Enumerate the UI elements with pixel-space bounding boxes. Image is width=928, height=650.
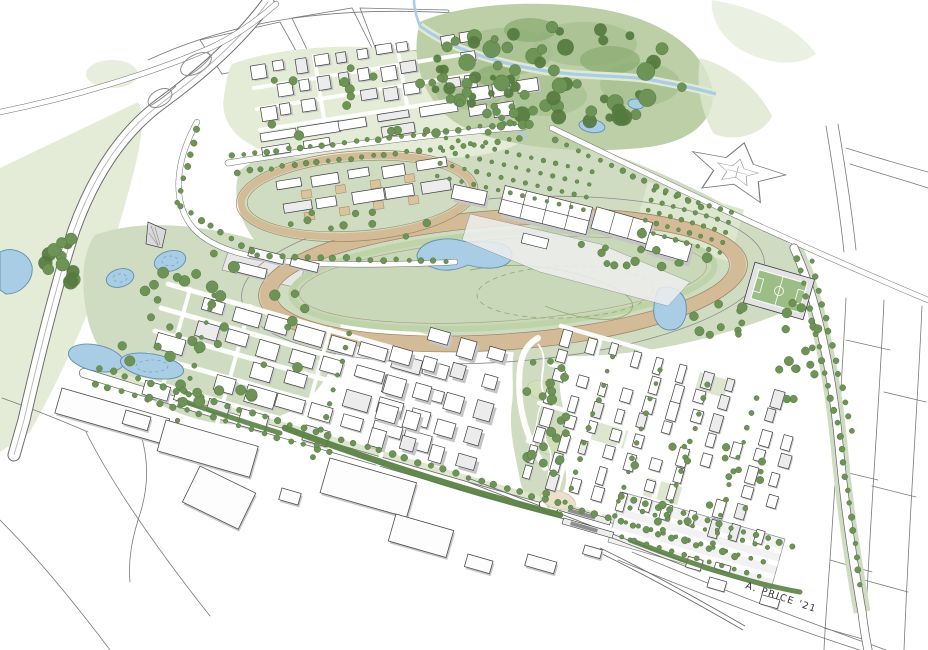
- park-tree: [261, 362, 267, 368]
- street-tree: [323, 414, 329, 420]
- street-tree: [438, 145, 443, 150]
- street-tree: [706, 546, 712, 552]
- park-tree: [737, 302, 747, 312]
- street-tree: [655, 531, 661, 537]
- street-tree: [92, 381, 98, 387]
- street-tree: [630, 497, 637, 504]
- park-tree: [309, 210, 315, 216]
- street-tree: [329, 255, 336, 262]
- street-tree: [389, 450, 396, 457]
- park-tree: [504, 88, 514, 98]
- park-tree: [558, 364, 565, 371]
- street-tree: [297, 145, 303, 151]
- park-tree: [539, 443, 547, 451]
- street-tree: [819, 301, 825, 307]
- street-tree: [504, 485, 510, 491]
- street-tree: [843, 400, 848, 405]
- street-tree: [612, 513, 617, 518]
- street-tree: [660, 527, 665, 532]
- street-tree: [376, 447, 382, 453]
- park-tree: [586, 106, 597, 117]
- park-tree: [228, 261, 240, 273]
- building: [360, 88, 378, 101]
- street-tree: [855, 567, 861, 573]
- street-tree: [289, 439, 294, 444]
- park-tree: [149, 280, 158, 289]
- street-tree: [472, 143, 477, 148]
- park-tree: [594, 23, 607, 36]
- street-tree: [822, 371, 827, 376]
- park-tree: [631, 257, 640, 266]
- park-tree: [246, 389, 258, 401]
- park-tree: [631, 109, 641, 119]
- building: [279, 103, 291, 116]
- street-tree: [719, 548, 726, 555]
- street-tree: [626, 470, 630, 474]
- building: [295, 58, 308, 74]
- park-tree: [352, 210, 359, 217]
- park-tree: [530, 359, 536, 365]
- park-tree: [499, 115, 505, 121]
- building: [250, 64, 267, 80]
- street-tree: [643, 411, 648, 416]
- park-tree: [210, 250, 217, 257]
- park-tree: [369, 209, 376, 216]
- street-tree: [96, 365, 102, 371]
- street-tree: [653, 184, 659, 190]
- park-tree: [546, 427, 556, 437]
- park-tree: [433, 55, 441, 63]
- street-tree: [507, 137, 511, 141]
- street-tree: [314, 442, 319, 447]
- park-tree: [547, 395, 557, 405]
- park-tree: [507, 28, 520, 41]
- street-tree: [414, 459, 421, 466]
- park-tree: [578, 241, 585, 248]
- street-tree: [262, 431, 267, 436]
- park-tree: [269, 290, 280, 301]
- street-tree: [335, 373, 339, 377]
- park-tree: [415, 79, 424, 88]
- street-tree: [210, 414, 216, 420]
- street-tree: [668, 535, 674, 541]
- street-tree: [605, 369, 609, 373]
- street-tree: [208, 223, 214, 229]
- park-tree: [468, 36, 480, 48]
- building: [317, 75, 331, 90]
- park-tree: [497, 122, 505, 130]
- street-tree: [236, 423, 240, 427]
- park-tree: [797, 303, 806, 312]
- park-tree: [507, 120, 514, 127]
- street-tree: [175, 418, 180, 423]
- park-tree: [739, 320, 745, 326]
- street-tree: [679, 469, 684, 474]
- street-tree: [598, 158, 602, 162]
- street-tree: [839, 446, 845, 452]
- street-tree: [204, 320, 208, 324]
- street-tree: [749, 410, 754, 415]
- street-tree: [122, 374, 128, 380]
- street-tree: [110, 368, 117, 375]
- street-tree: [365, 137, 370, 142]
- street-tree: [823, 315, 829, 321]
- park-tree: [525, 120, 534, 129]
- street-tree: [609, 163, 614, 168]
- park-tree: [456, 99, 463, 106]
- street-tree: [371, 153, 375, 157]
- park-tree: [675, 260, 681, 266]
- street-tree: [528, 493, 534, 499]
- park-tree: [482, 109, 491, 118]
- street-tree: [178, 203, 184, 209]
- street-tree: [605, 515, 611, 521]
- street-tree: [658, 368, 663, 373]
- street-tree: [552, 137, 558, 143]
- street-tree: [622, 485, 627, 490]
- street-tree: [810, 259, 815, 264]
- park-tree: [539, 392, 547, 400]
- stable-paddock: [339, 206, 350, 215]
- park-tree: [446, 95, 455, 104]
- street-tree: [310, 454, 315, 459]
- street-tree: [301, 425, 307, 431]
- street-tree: [648, 397, 653, 402]
- street-tree: [569, 486, 574, 491]
- street-tree: [238, 243, 244, 249]
- masterplan-drawing: A. PRICE '21: [0, 0, 928, 650]
- park-tree: [483, 40, 500, 57]
- street-tree: [840, 459, 846, 465]
- street-tree: [157, 400, 164, 407]
- street-tree: [393, 151, 398, 156]
- park-tree: [706, 502, 713, 509]
- street-tree: [568, 505, 573, 510]
- street-tree: [798, 268, 803, 273]
- street-tree: [305, 255, 311, 261]
- street-tree: [577, 456, 582, 461]
- park-tree: [220, 323, 229, 332]
- park-tree: [442, 42, 452, 52]
- park-tree: [369, 220, 376, 227]
- park-tree: [669, 443, 677, 451]
- street-tree: [642, 501, 648, 507]
- park-tree: [684, 458, 690, 464]
- street-tree: [104, 385, 110, 391]
- street-tree: [835, 420, 840, 425]
- street-tree: [664, 512, 670, 518]
- street-tree: [742, 440, 746, 444]
- street-tree: [418, 258, 424, 264]
- park-tree: [775, 366, 782, 373]
- building: [299, 79, 310, 91]
- park-tree: [809, 345, 815, 351]
- street-tree: [160, 384, 167, 391]
- park-tree: [637, 229, 647, 239]
- street-tree: [273, 148, 279, 154]
- park-tree: [493, 108, 501, 116]
- street-tree: [630, 523, 636, 529]
- street-tree: [229, 236, 234, 241]
- street-tree: [274, 435, 280, 441]
- street-tree: [466, 476, 471, 481]
- street-tree: [404, 149, 408, 153]
- street-tree: [319, 143, 325, 149]
- street-tree: [440, 466, 447, 473]
- park-tree: [214, 340, 222, 348]
- park-tree: [431, 128, 440, 137]
- street-tree: [381, 152, 386, 157]
- park-tree: [562, 413, 570, 421]
- street-tree: [847, 500, 852, 505]
- park-tree: [423, 219, 431, 227]
- stable-paddock: [404, 173, 415, 182]
- street-tree: [618, 493, 624, 499]
- park-tree: [342, 101, 350, 109]
- park-tree: [403, 233, 409, 239]
- street-tree: [354, 139, 359, 144]
- park-tree: [756, 476, 763, 483]
- park-tree: [294, 131, 304, 141]
- street-tree: [840, 385, 846, 391]
- park-tree: [485, 129, 491, 135]
- park-tree: [56, 258, 69, 271]
- street-tree: [701, 395, 706, 400]
- park-tree: [180, 387, 186, 393]
- park-tree: [347, 92, 355, 100]
- park-tree: [304, 217, 311, 224]
- street-tree: [350, 440, 356, 446]
- park-tree: [347, 65, 354, 72]
- park-tree: [743, 506, 748, 511]
- park-tree: [451, 37, 460, 46]
- street-tree: [610, 354, 615, 359]
- street-tree: [356, 257, 361, 262]
- park-tree: [623, 262, 630, 269]
- street-tree: [579, 508, 585, 514]
- park-tree: [548, 387, 556, 395]
- street-tree: [790, 544, 795, 549]
- park-tree: [598, 249, 606, 257]
- park-tree: [509, 108, 519, 118]
- street-tree: [326, 159, 330, 163]
- stable-paddock: [370, 179, 381, 188]
- street-tree: [729, 526, 734, 531]
- street-tree: [766, 535, 771, 540]
- street-tree: [838, 433, 844, 439]
- park-tree: [539, 459, 547, 467]
- park-tree: [551, 109, 566, 124]
- street-tree: [229, 152, 235, 158]
- street-tree: [450, 145, 455, 150]
- park-tree: [637, 246, 644, 253]
- park-tree: [548, 65, 559, 76]
- street-tree: [687, 439, 692, 444]
- street-tree: [189, 210, 194, 215]
- park-tree: [165, 351, 176, 362]
- street-tree: [187, 152, 193, 158]
- park-tree: [547, 358, 553, 364]
- park-tree: [814, 325, 822, 333]
- street-tree: [586, 425, 591, 430]
- park-tree: [758, 469, 763, 474]
- park-tree: [488, 90, 495, 97]
- park-tree: [735, 331, 741, 337]
- street-tree: [643, 526, 650, 533]
- street-tree: [573, 470, 578, 475]
- park-tree: [637, 63, 655, 81]
- park-tree: [193, 388, 202, 397]
- street-tree: [331, 388, 336, 393]
- park-tree: [560, 373, 568, 381]
- street-tree: [193, 126, 199, 132]
- street-tree: [845, 488, 850, 493]
- park-tree: [268, 120, 276, 128]
- park-tree: [706, 331, 714, 339]
- street-tree: [330, 142, 335, 147]
- street-tree: [428, 463, 433, 468]
- park-tree: [43, 264, 54, 275]
- street-tree: [234, 170, 240, 176]
- park-tree: [291, 290, 299, 298]
- street-tree: [857, 582, 862, 587]
- park-tree: [695, 327, 704, 336]
- park-tree: [502, 42, 513, 53]
- street-tree: [380, 257, 386, 263]
- street-tree: [386, 135, 391, 140]
- street-tree: [401, 454, 408, 461]
- street-tree: [776, 539, 783, 546]
- street-tree: [663, 188, 668, 193]
- street-tree: [399, 134, 403, 138]
- street-tree: [723, 497, 728, 502]
- street-tree: [444, 259, 449, 264]
- street-tree: [854, 555, 859, 560]
- street-tree: [590, 411, 594, 415]
- park-tree: [782, 325, 790, 333]
- street-tree: [247, 167, 253, 173]
- street-tree: [848, 514, 855, 521]
- park-tree: [550, 470, 557, 477]
- park-tree: [546, 379, 555, 388]
- park-tree: [543, 490, 550, 497]
- canopy-dark: [580, 46, 640, 74]
- street-tree: [274, 417, 281, 424]
- street-tree: [835, 371, 841, 377]
- park-tree: [791, 365, 799, 373]
- park-tree: [811, 370, 819, 378]
- street-tree: [478, 124, 482, 128]
- street-tree: [249, 427, 254, 432]
- building: [381, 65, 398, 81]
- street-tree: [495, 139, 501, 145]
- stable-paddock: [335, 184, 346, 193]
- park-tree: [154, 343, 161, 350]
- street-tree: [825, 383, 830, 388]
- street-tree: [853, 541, 858, 546]
- park-tree: [147, 314, 154, 321]
- street-tree: [816, 288, 822, 294]
- park-tree: [423, 127, 430, 134]
- street-tree: [698, 204, 704, 210]
- park-tree: [789, 299, 797, 307]
- park-tree: [722, 455, 728, 461]
- street-tree: [586, 154, 590, 158]
- street-tree: [192, 363, 197, 368]
- street-tree: [461, 143, 466, 148]
- park-tree: [717, 323, 724, 330]
- street-tree: [342, 140, 347, 145]
- park-tree: [782, 308, 792, 318]
- street-tree: [211, 398, 218, 405]
- park-tree: [534, 57, 546, 69]
- park-tree: [300, 304, 309, 313]
- street-tree: [812, 274, 818, 280]
- park-tree: [432, 85, 440, 93]
- park-tree: [537, 44, 547, 54]
- park-tree: [736, 467, 742, 473]
- street-tree: [479, 478, 485, 484]
- street-tree: [181, 176, 186, 181]
- street-tree: [483, 140, 488, 145]
- street-tree: [199, 335, 203, 339]
- street-tree: [596, 397, 601, 402]
- park-tree: [557, 39, 574, 56]
- street-tree: [337, 157, 342, 162]
- street-tree: [581, 440, 586, 445]
- park-tree: [166, 324, 173, 331]
- street-tree: [347, 331, 352, 336]
- park-tree: [612, 104, 626, 118]
- street-tree: [634, 440, 639, 445]
- street-tree: [255, 253, 260, 258]
- street-tree: [618, 518, 624, 524]
- street-tree: [705, 382, 711, 388]
- street-tree: [601, 383, 606, 388]
- park-tree: [573, 79, 582, 88]
- street-tree: [731, 553, 738, 560]
- street-tree: [338, 437, 344, 443]
- street-tree: [185, 407, 190, 412]
- park-tree: [682, 444, 687, 449]
- street-tree: [744, 425, 749, 430]
- street-tree: [641, 178, 647, 184]
- street-tree: [696, 412, 701, 417]
- street-tree: [318, 427, 324, 433]
- park-tree: [236, 385, 246, 395]
- street-tree: [794, 256, 800, 262]
- street-tree: [191, 140, 197, 146]
- street-tree: [375, 137, 381, 143]
- park-tree: [206, 281, 218, 293]
- street-tree: [263, 414, 268, 419]
- street-tree: [348, 157, 353, 162]
- street-tree: [803, 293, 809, 299]
- building: [314, 53, 330, 66]
- street-tree: [147, 380, 154, 387]
- street-tree: [693, 426, 698, 431]
- street-tree: [343, 345, 348, 350]
- park-tree: [702, 253, 712, 263]
- street-tree: [252, 150, 257, 155]
- park-tree: [328, 226, 333, 231]
- park-tree: [652, 246, 660, 254]
- street-tree: [292, 162, 298, 168]
- street-tree: [368, 258, 373, 263]
- street-tree: [807, 306, 813, 312]
- park-tree: [546, 21, 558, 33]
- park-tree: [562, 429, 569, 436]
